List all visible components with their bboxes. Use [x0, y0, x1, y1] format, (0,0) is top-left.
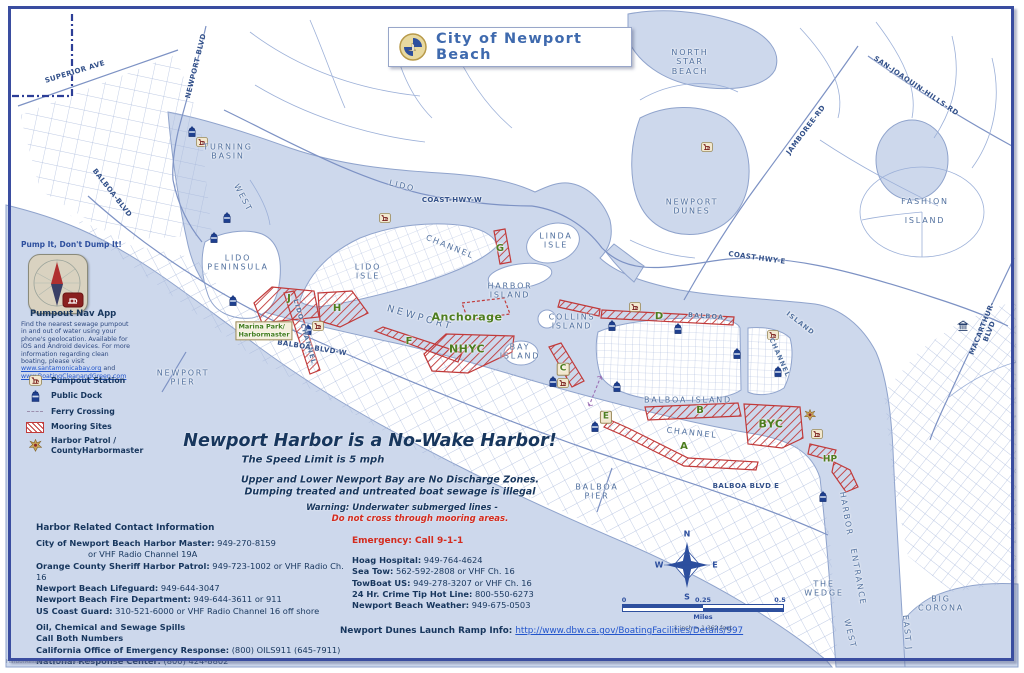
- public-dock-icon: [614, 381, 620, 391]
- submerged-lines-warning: Warning: Underwater submerged lines -: [306, 503, 498, 513]
- public-dock-icon: [550, 376, 556, 386]
- info-line: Newport Beach Lifeguard: 949-644-3047: [36, 583, 356, 594]
- public-dock-icon: [734, 348, 740, 358]
- legend-item-label: Mooring Sites: [51, 422, 112, 432]
- scale-tick-05: 0.5: [774, 596, 786, 604]
- pumpout-station-icon: [702, 143, 713, 152]
- info-line: Hoag Hospital: 949-764-4624: [352, 555, 622, 566]
- discharge-zone-text-2: Dumping treated and untreated boat sewag…: [245, 487, 536, 498]
- info-line: or VHF Radio Channel 19A: [36, 549, 356, 560]
- launch-ramp-label: Newport Dunes Launch Ramp Info:: [340, 626, 515, 636]
- slogan-text: Pump It, Don't Dump It!: [21, 240, 122, 249]
- map-legend: Pumpout StationPublic DockFerry Crossing…: [26, 374, 143, 458]
- santa-monica-bay-link[interactable]: www.santamonicabay.org: [21, 365, 101, 372]
- discharge-zone-text-1: Upper and Lower Newport Bay are No Disch…: [241, 475, 539, 486]
- scale-ticks: 0 0.25 0.5: [622, 596, 784, 604]
- info-line: City of Newport Beach Harbor Master: 949…: [36, 538, 356, 549]
- legend-item: Mooring Sites: [26, 421, 143, 434]
- info-line: TowBoat US: 949-278-3207 or VHF Ch. 16: [352, 578, 622, 589]
- public-dock-icon: [211, 232, 217, 242]
- info-line: Call Both Numbers: [36, 633, 356, 644]
- info-line: Newport Beach Fire Department: 949-644-3…: [36, 594, 356, 605]
- speed-limit-text: The Speed Limit is 5 mph: [242, 455, 385, 466]
- legend-item-label: Ferry Crossing: [51, 407, 115, 417]
- scale-bar-graphic: [622, 604, 784, 612]
- public-dock-icon: [592, 421, 598, 431]
- info-line: Newport Beach Weather: 949-675-0503: [352, 600, 622, 611]
- public-dock-icon: [305, 324, 311, 334]
- contact-info-heading: Harbor Related Contact Information: [36, 523, 356, 533]
- info-line: US Coast Guard: 310-521-6000 or VHF Radi…: [36, 606, 356, 617]
- newport-harbor-map-page: City of Newport Beach Pump It, Don't Dum…: [0, 0, 1024, 673]
- emergency-value: Call 9-1-1: [412, 536, 463, 546]
- info-line: Oil, Chemical and Sewage Spills: [36, 622, 356, 633]
- public-dock-icon: [189, 126, 195, 136]
- city-seal-icon: [399, 33, 427, 61]
- pumpout-icon: [26, 374, 44, 387]
- pumpout-station-icon: [558, 379, 569, 388]
- mooring-areas-warning: Do not cross through mooring areas.: [332, 514, 509, 524]
- app-name: Pumpout Nav App: [30, 309, 116, 319]
- pumpout-station-icon: [812, 430, 823, 439]
- no-wake-heading: Newport Harbor is a No-Wake Harbor!: [183, 431, 556, 451]
- legend-item: Pumpout Station: [26, 374, 143, 387]
- document-filename: HarborResources_PubInfo2.mxd: [6, 659, 94, 665]
- emergency-lines: Hoag Hospital: 949-764-4624Sea Tow: 562-…: [352, 555, 622, 611]
- scale-tick-0: 0: [622, 596, 627, 604]
- scale-tick-025: 0.25: [695, 596, 711, 604]
- legend-item-label: Public Dock: [51, 391, 102, 401]
- contact-info-lines: City of Newport Beach Harbor Master: 949…: [36, 538, 356, 667]
- scale-bar: 0 0.25 0.5 Miles 1 inch = 1,362 feet: [622, 596, 784, 632]
- pumpout-station-icon: [380, 214, 391, 223]
- legend-item: Public Dock: [26, 390, 143, 403]
- contact-info-block: Harbor Related Contact Information City …: [36, 523, 356, 667]
- dock-icon: [26, 390, 44, 403]
- public-dock-icon: [820, 491, 826, 501]
- public-dock-icon: [224, 212, 230, 222]
- pumpout-station-icon: [197, 138, 208, 147]
- info-line: Orange County Sheriff Harbor Patrol: 949…: [36, 561, 356, 584]
- scale-unit: Miles: [622, 613, 784, 621]
- pumpout-station-icon: [768, 331, 779, 340]
- legend-item: Harbor Patrol / CountyHarbormaster: [26, 436, 143, 455]
- conjunction-text: and: [101, 365, 115, 372]
- compass-south-label: S: [684, 593, 690, 602]
- star-icon: [26, 439, 44, 452]
- pumpout-nav-app-icon: [28, 254, 88, 314]
- legend-item-label: Pumpout Station: [51, 376, 125, 386]
- emergency-info-block: Emergency: Call 9-1-1 Hoag Hospital: 949…: [352, 536, 622, 611]
- scale-ratio-note: 1 inch = 1,362 feet: [622, 625, 784, 632]
- pumpout-station-icon: [630, 303, 641, 312]
- compass-north-label: N: [684, 530, 691, 539]
- app-description-text: Find the nearest sewage pumpout in and o…: [21, 321, 130, 365]
- legend-item-label: Harbor Patrol / CountyHarbormaster: [51, 436, 143, 455]
- info-line: California Office of Emergency Response:…: [36, 645, 356, 656]
- map-title-box: City of Newport Beach: [388, 27, 632, 67]
- public-dock-icon: [775, 366, 781, 376]
- public-dock-icon: [675, 323, 681, 333]
- emergency-label: Emergency:: [352, 536, 412, 546]
- app-description: Find the nearest sewage pumpout in and o…: [21, 321, 131, 380]
- compass-east-label: E: [712, 561, 717, 570]
- pumpout-station-icon: [313, 322, 324, 331]
- emergency-heading: Emergency: Call 9-1-1: [352, 536, 622, 546]
- legend-item: Ferry Crossing: [26, 405, 143, 418]
- public-dock-icon: [609, 320, 615, 330]
- public-dock-icon: [230, 295, 236, 305]
- info-line: Sea Tow: 562-592-2808 or VHF Ch. 16: [352, 566, 622, 577]
- ferry-icon: [26, 405, 44, 418]
- page-title: City of Newport Beach: [436, 31, 631, 63]
- info-line: 24 Hr. Crime Tip Hot Line: 800-550-6273: [352, 589, 622, 600]
- compass-west-label: W: [655, 561, 664, 570]
- mooring-icon: [26, 421, 44, 434]
